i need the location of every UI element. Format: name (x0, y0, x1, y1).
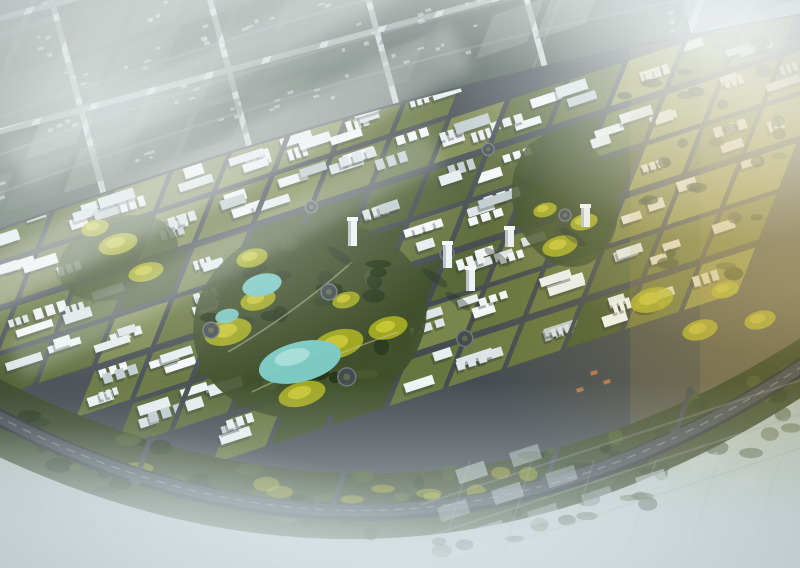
city-aerial-scene (0, 0, 800, 568)
aerial-city-render (0, 0, 800, 568)
atmosphere-overlays (0, 0, 800, 568)
